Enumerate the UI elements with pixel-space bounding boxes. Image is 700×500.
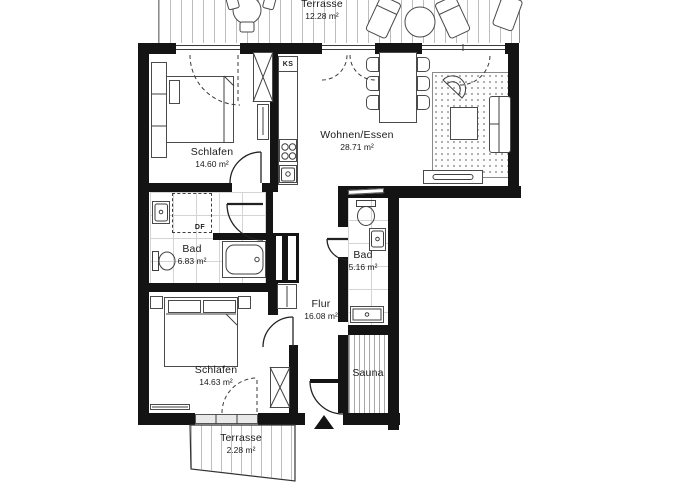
lounge-chair-icon	[365, 0, 401, 39]
terrace-door-arc-bedroom1	[190, 55, 240, 105]
terrace-door-arc-living-window	[460, 55, 490, 85]
terrace-door-arc-living-left	[322, 55, 347, 80]
washbasin-bowl	[372, 231, 384, 247]
room-label-terrasse-top: Terrasse 12.28 m²	[301, 0, 343, 21]
washbasin-drain	[159, 210, 163, 214]
toilet-bowl	[159, 252, 175, 270]
entrance-arrow-icon	[314, 415, 334, 429]
door-arc-entrance	[310, 381, 343, 414]
wardrobe-x-icon	[253, 52, 273, 102]
bathtub-drain	[255, 257, 259, 261]
bed-detail-lines	[166, 76, 237, 325]
room-label-schlafen-top: Schlafen 14.60 m²	[191, 146, 233, 169]
door-arc-bath1	[227, 204, 263, 240]
sideboard-handle	[433, 175, 473, 180]
sink-basin	[282, 168, 295, 181]
door-arc-bedroom2	[263, 317, 293, 347]
toilet-bowl	[358, 207, 375, 226]
toilet-tank	[153, 252, 159, 271]
terrace-chair-icon	[262, 0, 276, 10]
side-table-icon	[405, 7, 435, 37]
bathtub-inner	[226, 245, 263, 274]
wardrobe-x-icon	[270, 367, 290, 408]
shower-inner	[353, 309, 381, 320]
door-arc-bedroom1	[230, 152, 261, 183]
room-label-terrasse-bottom: Terrasse 2.28 m²	[220, 432, 262, 455]
sofa-detail-lines	[490, 97, 499, 152]
room-label-bad-right: Bad 5.16 m²	[349, 249, 378, 272]
room-label-flur: Flur 16.08 m²	[304, 298, 338, 321]
room-label-wohnen-essen: Wohnen/Essen 28.71 m²	[320, 129, 393, 152]
terrace-chair-icon	[492, 0, 523, 31]
armchair-icon	[443, 76, 466, 98]
door-arc-bath2	[327, 239, 348, 260]
closet-dividers	[151, 94, 167, 126]
room-label-schlafen-bottom: Schlafen 14.63 m²	[195, 364, 237, 387]
shower-drain	[365, 313, 369, 317]
room-label-sauna: Sauna	[352, 367, 383, 379]
lounge-chair-icon	[435, 0, 471, 39]
sink-drain	[286, 172, 290, 176]
stove-burners	[282, 144, 296, 159]
floor-plan: KS DF	[0, 0, 700, 500]
terrace-furniture	[226, 0, 523, 39]
washbasin-bowl	[155, 204, 168, 221]
terrace-door-arc-living-right	[350, 55, 375, 80]
washbasin-drain	[376, 237, 380, 241]
toilet-tank	[357, 201, 376, 207]
room-label-bad-top: Bad 6.83 m²	[178, 243, 207, 266]
terrace-chair-icon	[240, 22, 254, 32]
